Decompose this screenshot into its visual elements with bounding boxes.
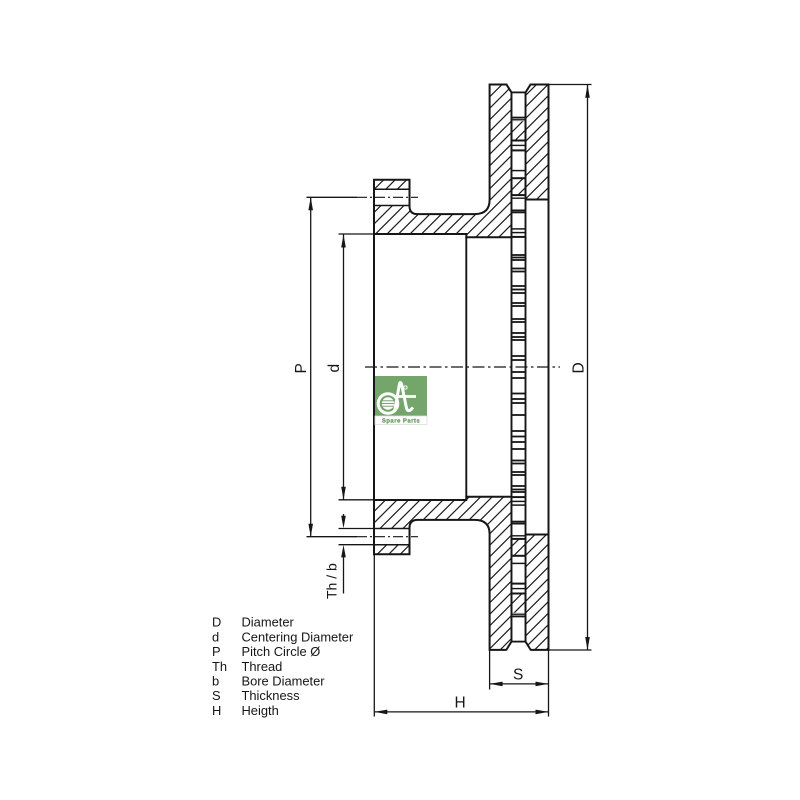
svg-text:Spare Parts: Spare Parts [382,417,421,424]
svg-text:Pitch Circle Ø: Pitch Circle Ø [242,644,321,659]
svg-text:Bore Diameter: Bore Diameter [242,674,326,689]
svg-text:S: S [212,688,221,703]
svg-text:Diameter: Diameter [242,615,295,630]
svg-text:d: d [326,364,343,373]
svg-text:Thread: Thread [242,659,283,674]
svg-text:Th / b: Th / b [324,563,340,599]
svg-text:Th: Th [212,659,227,674]
svg-text:Heigth: Heigth [242,703,279,718]
svg-text:d: d [212,629,219,644]
svg-text:Thickness: Thickness [242,688,300,703]
svg-text:H: H [212,703,221,718]
svg-text:S: S [513,667,523,684]
svg-text:H: H [455,695,466,712]
svg-text:D: D [212,615,221,630]
svg-text:Centering Diameter: Centering Diameter [242,629,354,644]
svg-text:D: D [571,362,588,373]
svg-text:b: b [212,674,219,689]
svg-text:P: P [293,363,310,373]
svg-text:P: P [212,644,221,659]
